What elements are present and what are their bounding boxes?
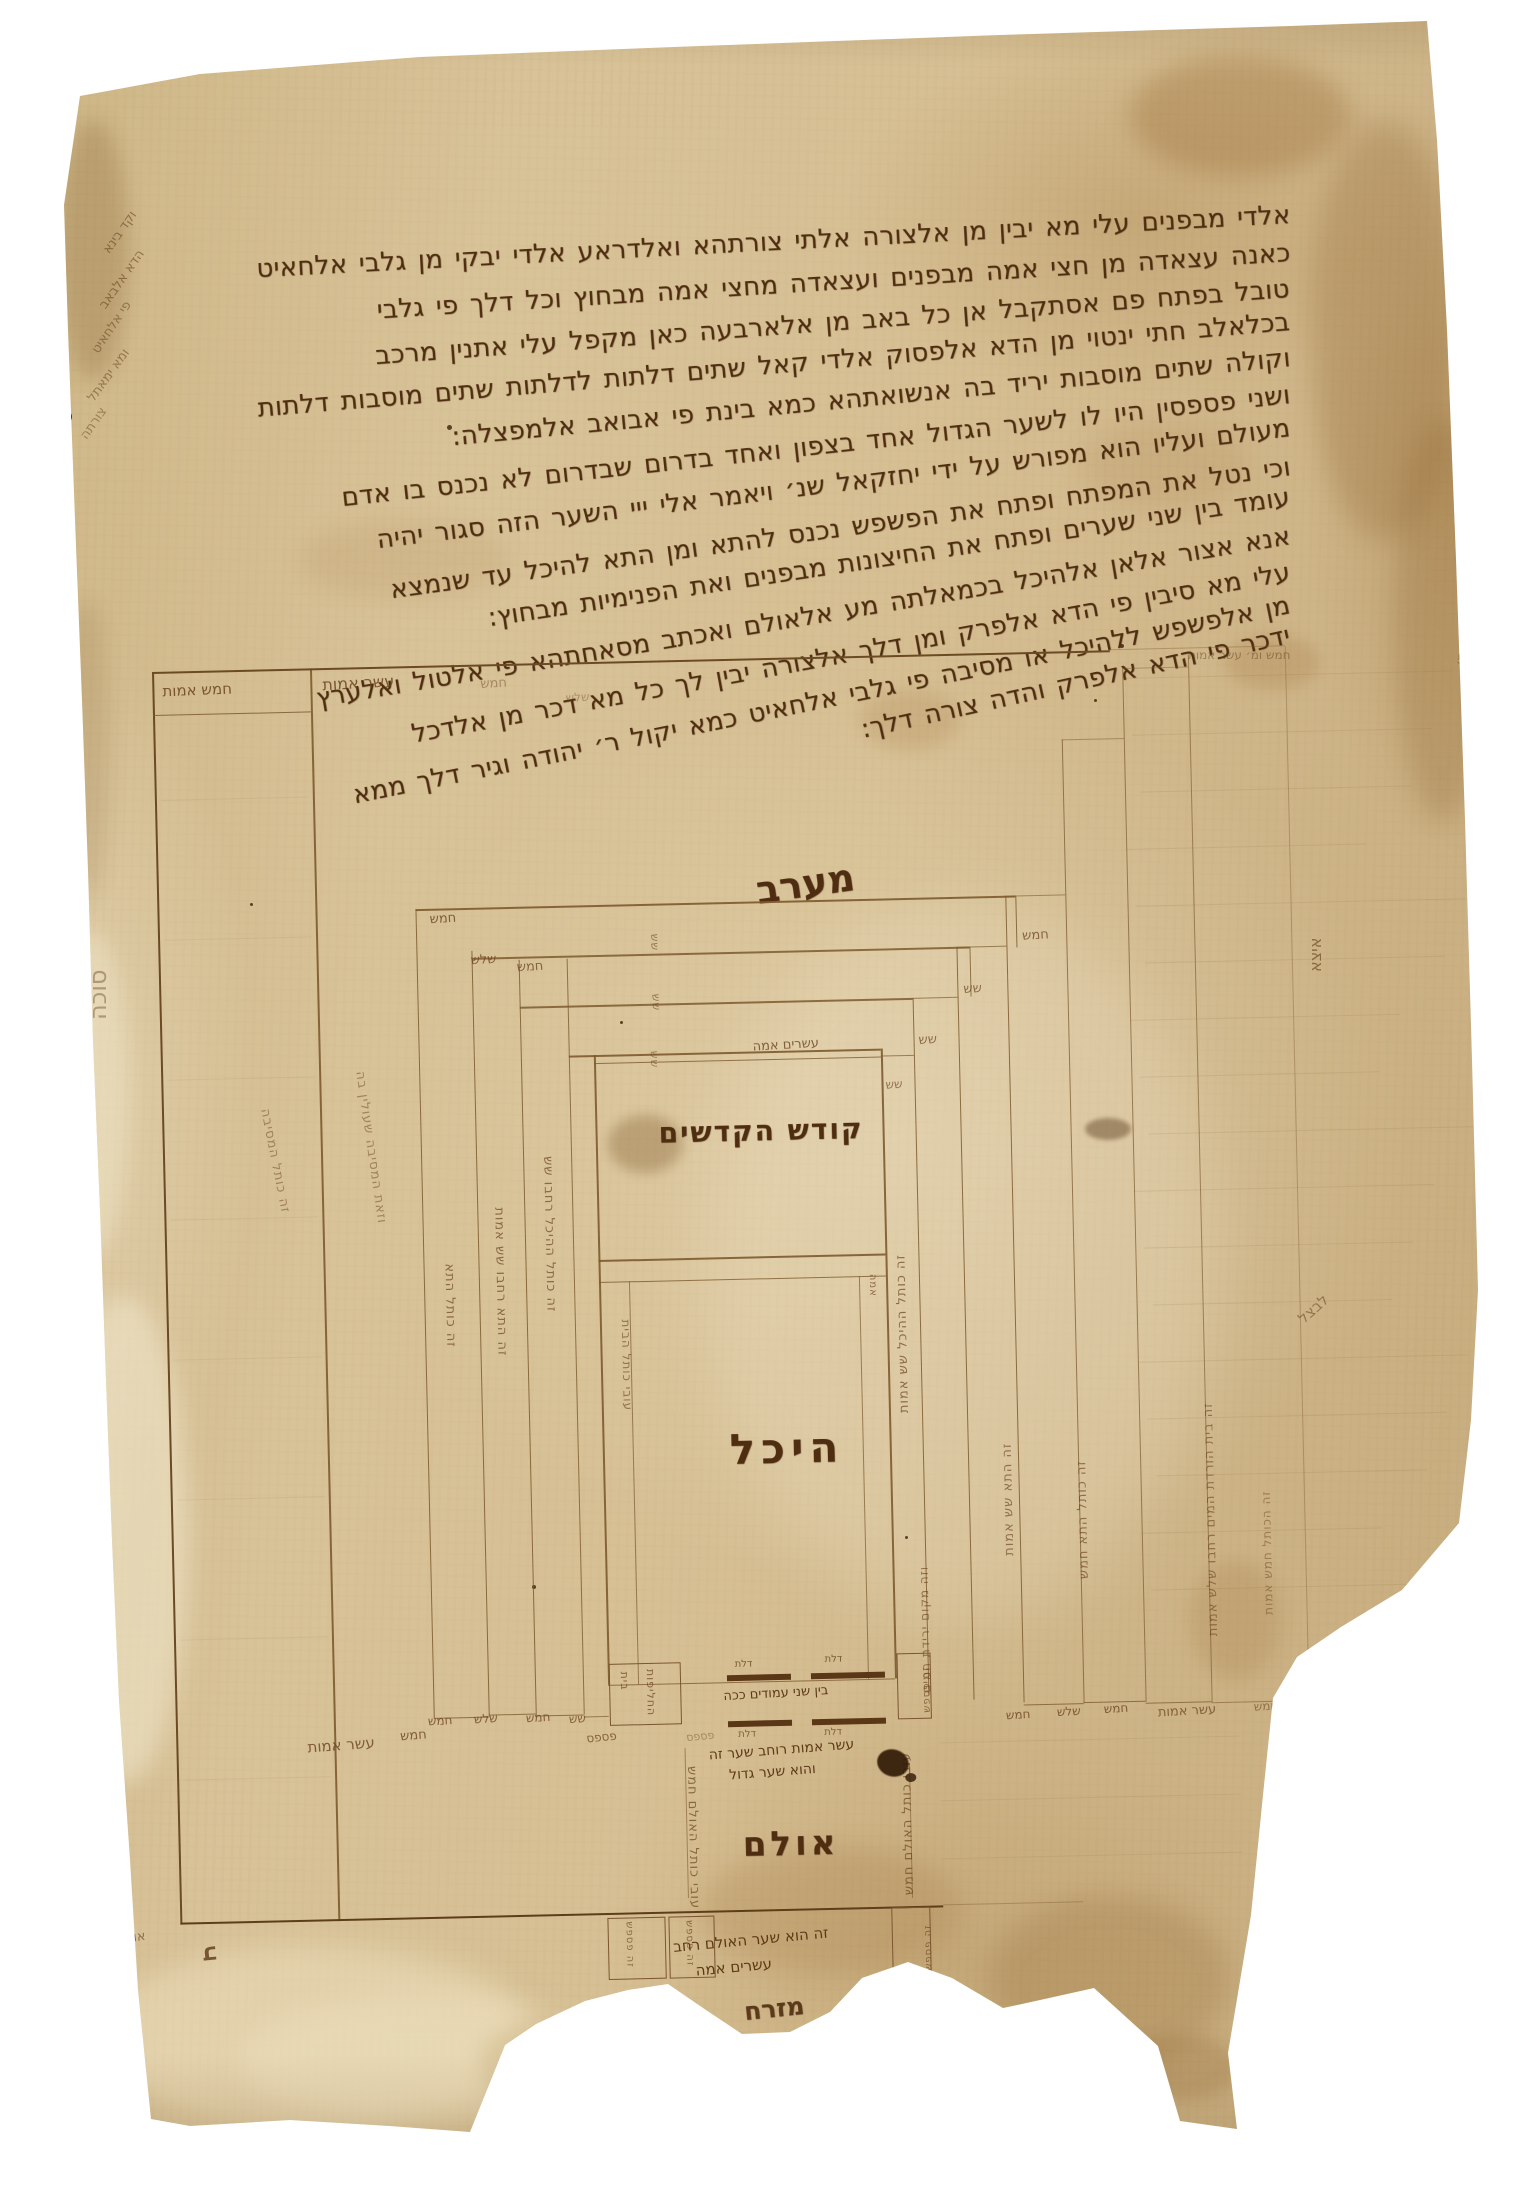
diagram-line [152,650,1110,674]
show-through-line [1156,1469,1426,1476]
show-through-line [1122,670,1452,678]
band-label-vertical: שש [648,934,661,952]
show-through-line [1126,843,1366,849]
band-label-vertical: זה כותל המסיבה [257,1107,293,1214]
measure-label: עשר אמות [1157,1702,1216,1720]
band-label-vertical: זה התא רחבו שש אמות [491,1207,509,1356]
band-label-vertical: זה בית הורדת המים רחבו שלש אמות [1201,1402,1221,1636]
measure-label: חמש [516,959,543,976]
diagram-line [567,959,586,1715]
band-label-vertical: זה כותל ההיכל שש אמות [893,1254,912,1413]
measure-label: חמש [525,1710,550,1725]
measure-label: עשר אמות [307,1733,376,1756]
margin-mark-bottom-left: אור [125,1929,146,1947]
diagram-line [859,1276,869,1679]
band-label-vertical: שש [649,994,662,1012]
diagram-line [1285,646,1310,1699]
band-label-vertical: זה כותל התא חמש [1074,1460,1092,1579]
east-box-left-1 [607,1917,666,1980]
band-label-vertical: זה התא שש אמות [1000,1442,1018,1555]
east-box-right [891,1907,932,1976]
show-through-line [1134,1184,1434,1192]
show-through-line [1153,1299,1393,1305]
diagram-line [520,998,913,1008]
measure-label: שש [885,1077,903,1092]
diagram-line [1005,894,1065,897]
measure-label: חמש אמות [162,680,232,701]
manuscript-page: אלדי מבפנים עלי מא יבין מן אלצורה אלתי צ… [0,0,1536,2185]
show-through-line [1145,956,1445,964]
diagram-line [152,672,182,1925]
measure-label: שש [918,1032,937,1048]
band-label-vertical: זה כותל ההיכל רחבו שש [540,1156,559,1313]
margin-curl-mark: ב [201,1937,218,1966]
diagram-line [569,1049,881,1058]
measure-label: שלש [473,1711,498,1726]
diagram-line [584,1716,609,1718]
diagram-line [1062,738,1124,741]
measure-label: חמש [400,1727,428,1744]
manuscript-scan: אלדי מבפנים עלי מא יבין מן אלצורה אלתי צ… [0,0,1536,2185]
measure-label: חמש [1253,1698,1278,1713]
ulam-label: אולם [742,1823,840,1865]
show-through-line [1141,785,1411,792]
door-label: דלת [738,1729,756,1740]
diagram-line [943,1901,1083,1905]
show-through-line [1138,1354,1468,1362]
door-bar [812,1718,886,1726]
show-through-line [941,1794,1241,1802]
show-through-line [942,1852,1242,1860]
heichal-label: היכל [729,1423,845,1475]
show-through-line [174,1356,322,1360]
show-through-line [1132,728,1432,736]
measure-label: חמש [1005,1707,1030,1722]
measure-label: חמש [429,911,456,928]
diagram-line [956,947,974,1700]
show-through-line [1151,1582,1481,1590]
great-gate-note-1: עשר אמות רוחב שער זה [708,1737,855,1764]
diagram-line [310,668,340,1921]
show-through-line [167,1076,315,1080]
diagram-line [1122,668,1147,1702]
measure-label: שלש [1056,1704,1081,1719]
show-through-line [939,1736,1239,1744]
show-through-line [170,1216,318,1220]
measure-label: שלש [470,952,497,968]
measure-label: פספס [686,1729,715,1745]
door-label: דלת [824,1727,842,1738]
show-through-line [1130,1014,1400,1021]
measure-label: חמש [480,676,507,693]
diagram-line [471,951,490,1717]
show-through-line [161,796,309,800]
band-label-vertical: וזאת המסיבה שעולין בה [352,1070,389,1225]
measure-label: עשר אמות [322,671,395,694]
margin-edge-tiny: מ׳ [1453,651,1469,666]
diagram-line [594,1057,881,1065]
diagram-line [180,1905,943,1925]
diagram-lines-layer: חמש אמותעשר אמותחמששלשחמששלשחמשחמששששששש… [0,0,1520,4]
measure-label: שש [963,981,982,997]
band-label-vertical: עובי כותל האולם חמש [684,1766,702,1909]
show-through-line [1143,1242,1413,1249]
measure-label: חמש [1022,927,1049,944]
show-through-line [183,1776,331,1780]
diagram-line [519,960,538,1716]
temple-plan-diagram: חמש אמותעשר אמותחמששלשחמששלשחמשחמששששששש… [0,0,1536,2185]
quire-mark: סוכה [84,970,112,1020]
diagram-line [881,1055,914,1057]
show-through-line [180,1636,328,1640]
holy-of-holies-label: קודש הקדשים [658,1112,864,1150]
diagram-line [594,1055,610,1685]
show-through-line [1147,1412,1447,1420]
diagram-line [1015,895,1018,947]
band-label-vertical: שש [648,1051,661,1069]
band-label-vertical: זה הכותל חמש אמות [1259,1490,1276,1615]
band-label-vertical: אמה [867,1274,879,1297]
measure-label: שלש [565,690,590,705]
measure-label: שש [568,1711,586,1726]
diagram-line [415,909,435,1718]
show-through-line [1136,898,1466,906]
diagram-line [956,946,1006,948]
gate-side-box-right [896,1653,931,1720]
door-bar [728,1720,792,1727]
diagram-line [415,895,1015,910]
show-through-line [164,936,312,940]
measure-label: חמש [1103,1701,1128,1716]
pillars-note: בין שני עמודים ככה [723,1683,829,1704]
wormhole [56,410,72,424]
diagram-line [472,947,970,960]
band-label-vertical: עובי כותל האולם חמש [899,1752,917,1895]
door-label: דלת [735,1659,753,1670]
diagram-line [599,1276,886,1284]
margin-gloss-right-vertical: איצא [1306,938,1325,972]
measure-label: חמש [427,1713,452,1728]
diagram-line [881,1049,897,1679]
diagram-line [1005,896,1025,1703]
great-gate-note-2: והוא שער גדול [729,1761,817,1783]
measure-label: עשרים אמה [752,1036,819,1055]
measure-label: פספס [586,1729,618,1746]
band-label-vertical: עובי כותל הבית [619,1319,635,1411]
band-label-vertical: זה כותל התא [441,1263,458,1348]
faint-top-right-measures: חמש ומ׳ עשר אמות [1188,648,1290,662]
diagram-line [153,711,311,716]
show-through-line [177,1496,325,1500]
diagram-line [913,997,958,999]
diagram-line [1122,666,1188,669]
show-through-line [1139,1071,1379,1077]
diagram-line [598,1254,885,1262]
gate-side-box-left [609,1662,682,1726]
door-label: דלת [824,1654,842,1665]
